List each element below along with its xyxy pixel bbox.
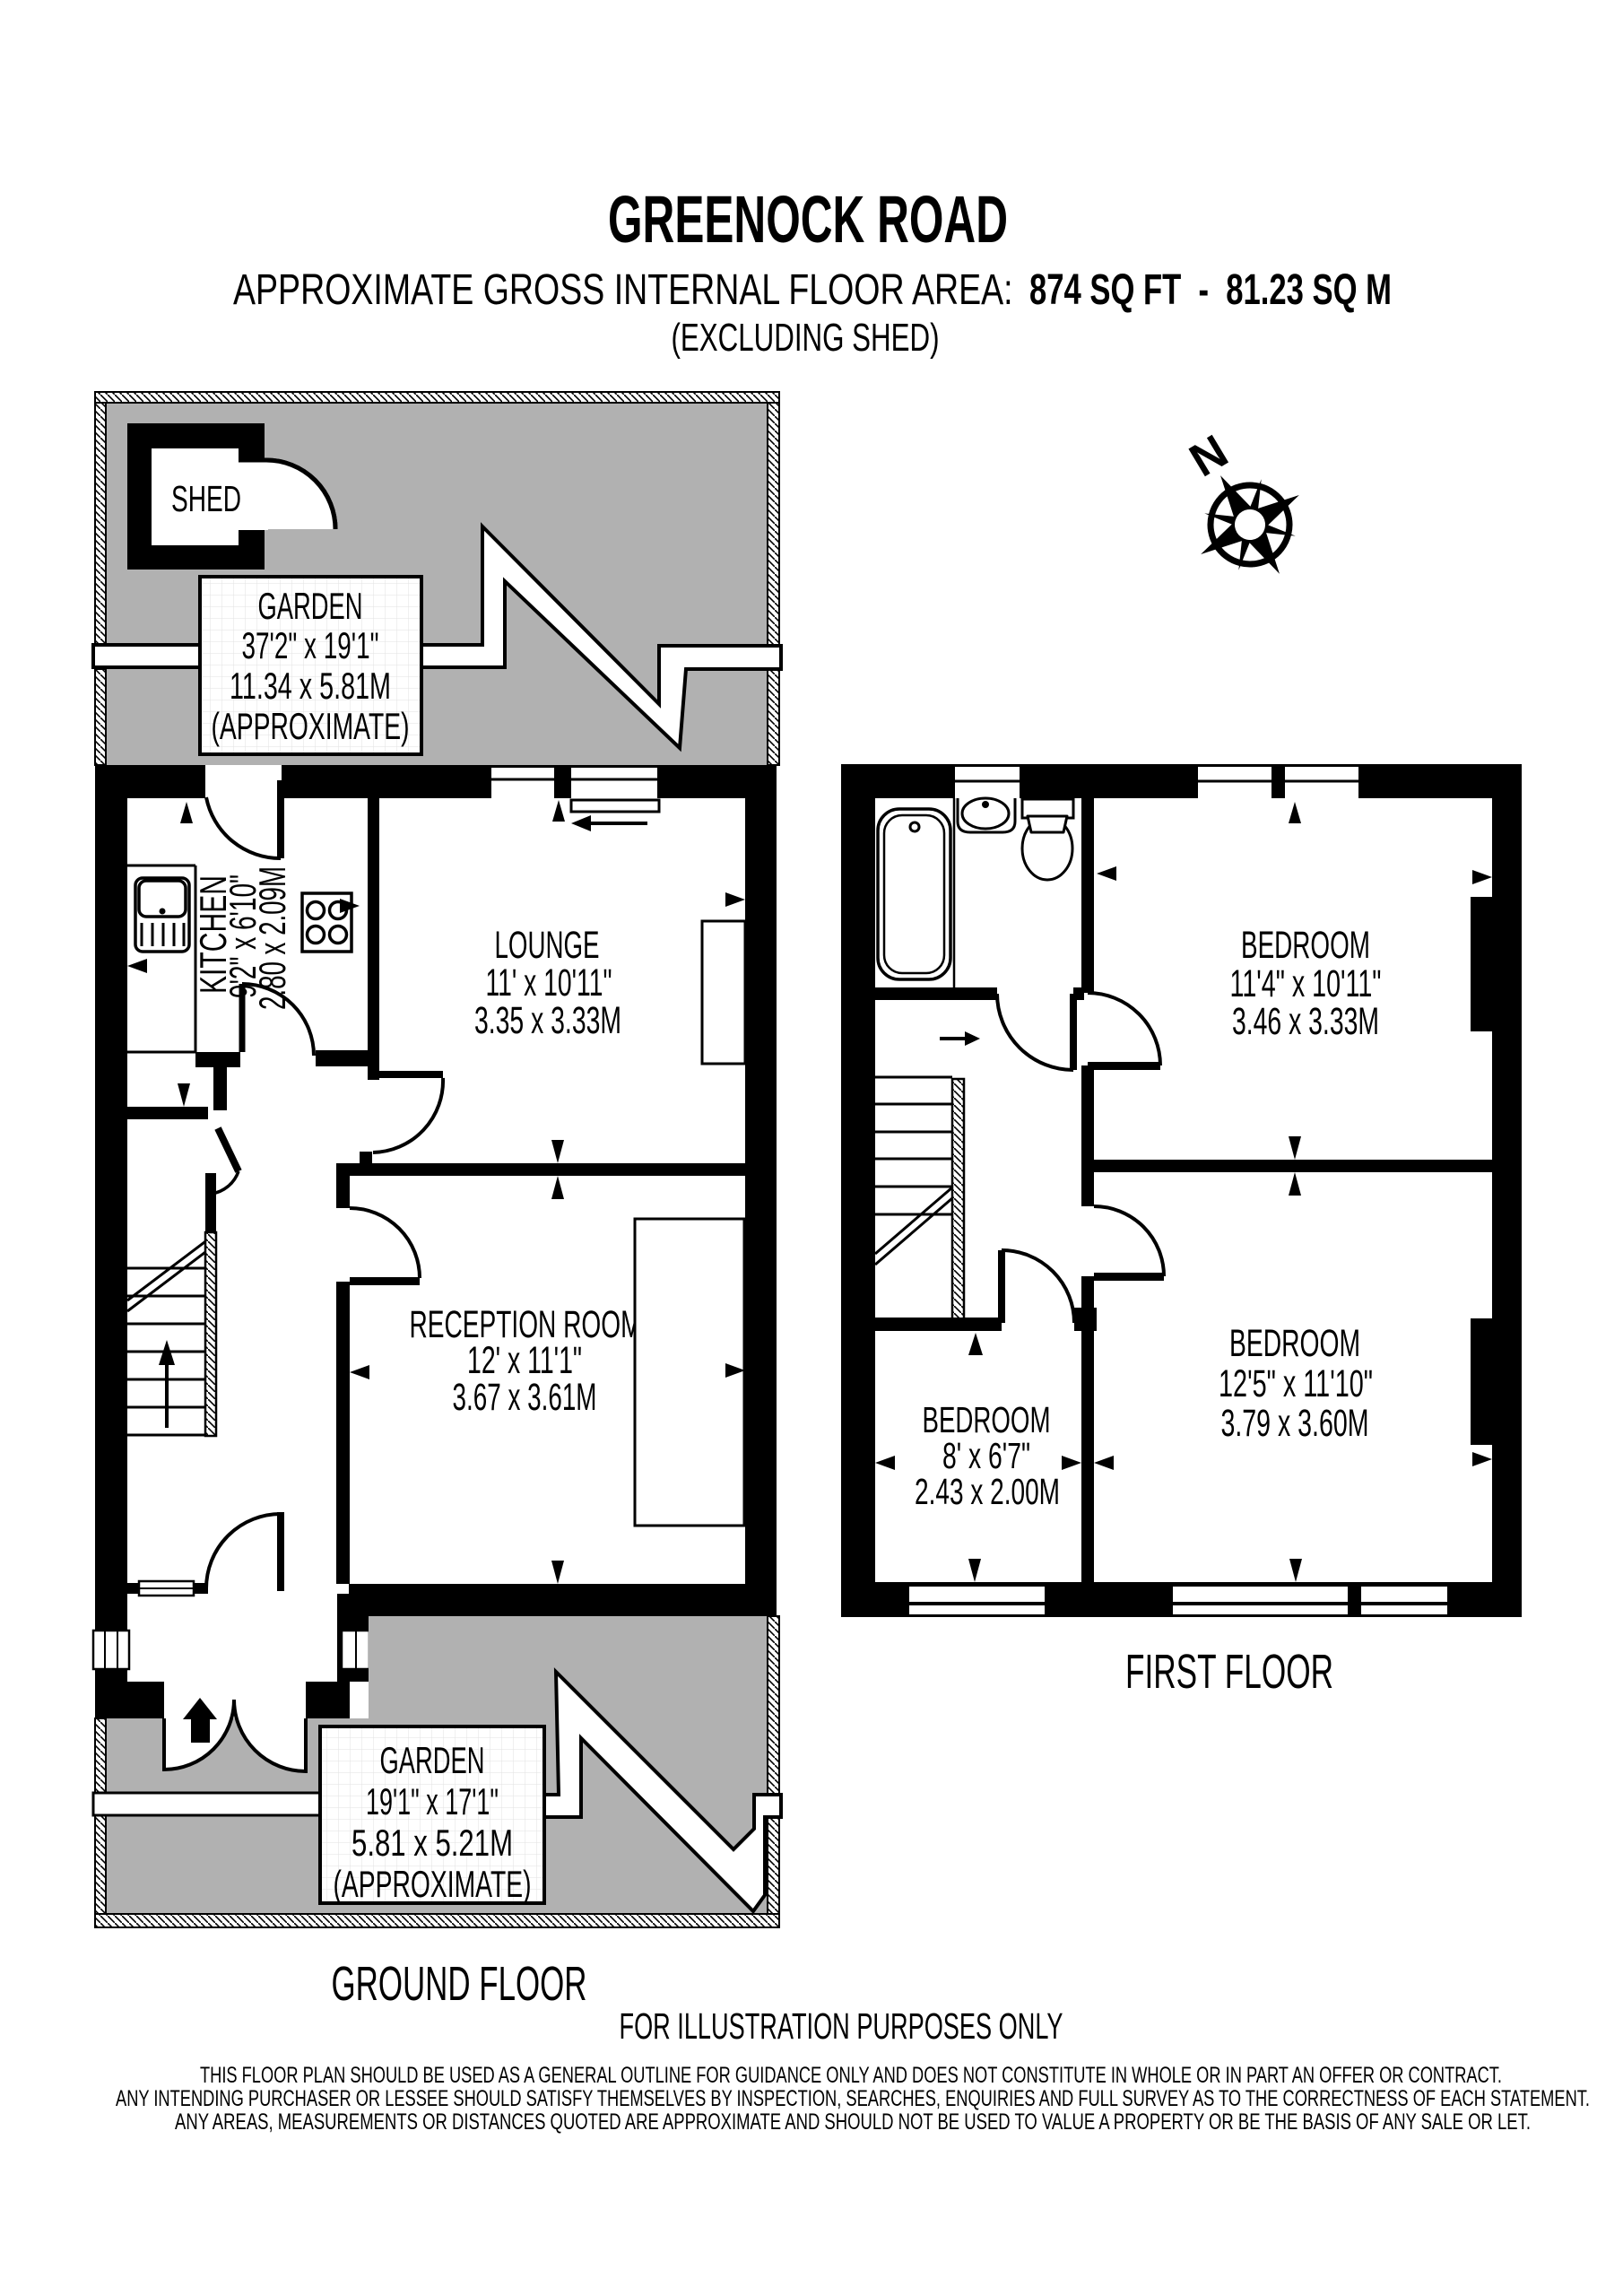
svg-text:(APPROXIMATE): (APPROXIMATE) (334, 1863, 532, 1905)
svg-text:GARDEN: GARDEN (380, 1739, 485, 1781)
svg-text:(EXCLUDING SHED): (EXCLUDING SHED) (672, 316, 940, 360)
svg-text:LOUNGE: LOUNGE (495, 924, 600, 967)
svg-text:SHED: SHED (171, 478, 241, 519)
svg-text:5.81 x 5.21M: 5.81 x 5.21M (352, 1822, 513, 1864)
svg-text:FIRST FLOOR: FIRST FLOOR (1125, 1645, 1333, 1699)
svg-text:APPROXIMATE GROSS INTERNAL FLO: APPROXIMATE GROSS INTERNAL FLOOR AREA: (233, 266, 1022, 314)
svg-text:12'5" x 11'10": 12'5" x 11'10" (1219, 1362, 1373, 1405)
svg-text:BEDROOM: BEDROOM (1241, 924, 1370, 967)
svg-text:GARDEN: GARDEN (258, 585, 363, 627)
svg-text:(APPROXIMATE): (APPROXIMATE) (212, 705, 410, 747)
svg-text:11.34 x 5.81M: 11.34 x 5.81M (230, 665, 391, 707)
svg-text:ANY AREAS, MEASUREMENTS OR DIS: ANY AREAS, MEASUREMENTS OR DISTANCES QUO… (175, 2109, 1531, 2135)
svg-text:3.46 x 3.33M: 3.46 x 3.33M (1232, 1000, 1379, 1043)
svg-text:ANY INTENDING PURCHASER OR LES: ANY INTENDING PURCHASER OR LESSEE SHOULD… (116, 2086, 1590, 2111)
svg-text:37'2" x 19'1": 37'2" x 19'1" (242, 624, 379, 666)
svg-text:19'1" x 17'1": 19'1" x 17'1" (366, 1780, 499, 1822)
svg-text:11'4" x 10'11": 11'4" x 10'11" (1230, 962, 1382, 1005)
svg-text:2.43 x 2.00M: 2.43 x 2.00M (915, 1471, 1060, 1512)
svg-text:3.79 x 3.60M: 3.79 x 3.60M (1221, 1402, 1369, 1445)
svg-text:2.80 x 2.09M: 2.80 x 2.09M (251, 866, 293, 1010)
svg-text:3.35 x 3.33M: 3.35 x 3.33M (474, 999, 621, 1042)
svg-text:GROUND FLOOR: GROUND FLOOR (332, 1957, 587, 2011)
svg-text:GREENOCK ROAD: GREENOCK ROAD (608, 182, 1008, 257)
svg-text:FOR ILLUSTRATION PURPOSES ONLY: FOR ILLUSTRATION PURPOSES ONLY (620, 2005, 1063, 2047)
svg-text:3.67 x 3.61M: 3.67 x 3.61M (453, 1376, 597, 1419)
svg-text:11' x 10'11": 11' x 10'11" (486, 961, 612, 1004)
svg-text:THIS FLOOR PLAN SHOULD BE USED: THIS FLOOR PLAN SHOULD BE USED AS A GENE… (200, 2063, 1502, 2088)
svg-text:874 SQ FT - 81.23 SQ M: 874 SQ FT - 81.23 SQ M (1029, 266, 1392, 314)
svg-text:BEDROOM: BEDROOM (1229, 1322, 1360, 1365)
